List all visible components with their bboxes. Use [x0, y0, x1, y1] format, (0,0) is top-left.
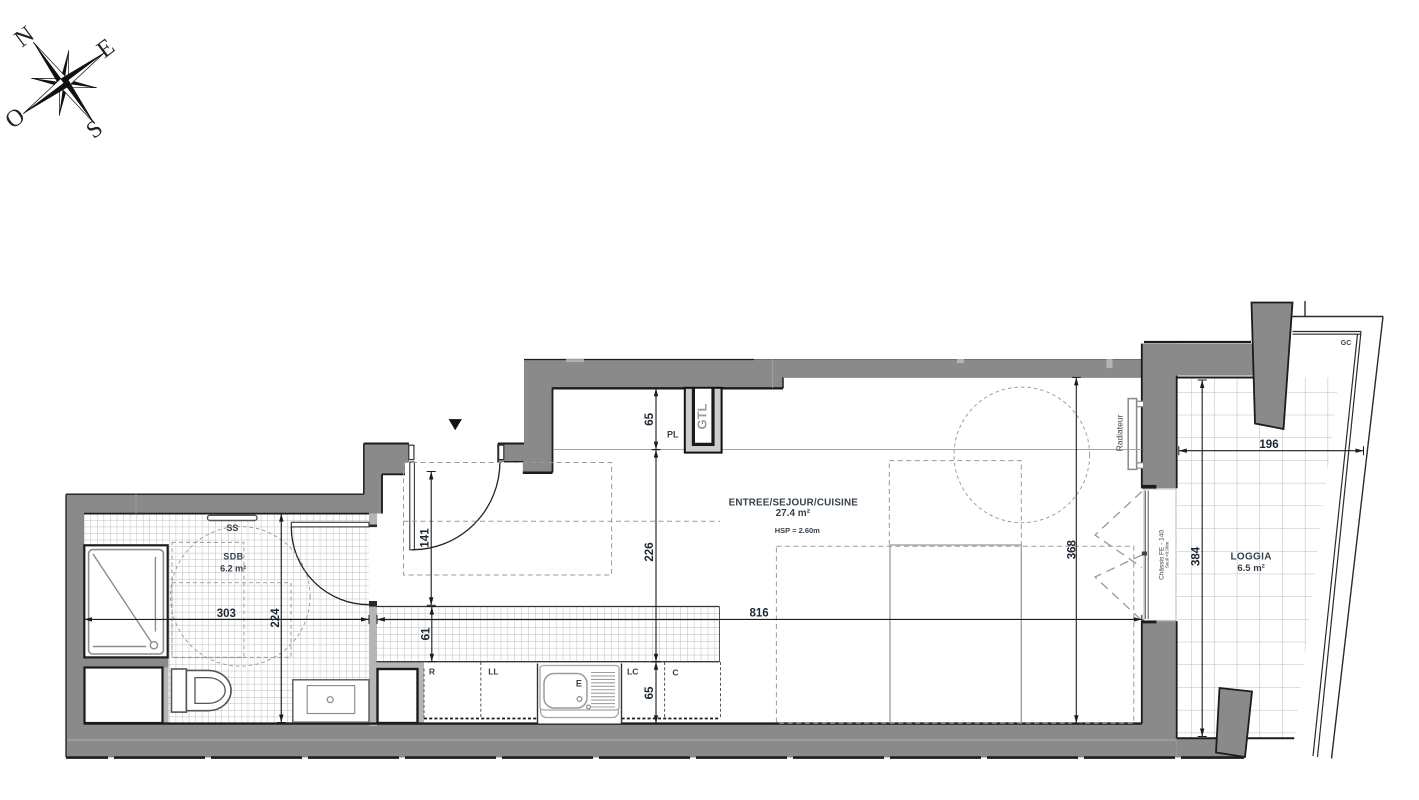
svg-text:6.5 m²: 6.5 m²: [1237, 563, 1264, 574]
svg-text:303: 303: [217, 608, 236, 620]
svg-text:196: 196: [1259, 439, 1278, 451]
svg-text:65: 65: [644, 686, 656, 699]
svg-text:E: E: [576, 679, 582, 689]
svg-text:816: 816: [750, 607, 769, 619]
svg-text:HSP = 2.60m: HSP = 2.60m: [775, 526, 820, 535]
svg-text:GTL: GTL: [695, 403, 710, 429]
svg-text:6.2 m²: 6.2 m²: [220, 563, 246, 573]
svg-text:LOGGIA: LOGGIA: [1230, 552, 1271, 563]
svg-text:226: 226: [644, 542, 656, 561]
svg-text:141: 141: [420, 528, 432, 548]
svg-text:SDB: SDB: [223, 551, 243, 561]
svg-text:PL: PL: [667, 429, 679, 439]
svg-text:61: 61: [420, 627, 432, 640]
svg-text:27.4 m²: 27.4 m²: [776, 508, 811, 519]
svg-text:ENTREE/SEJOUR/CUISINE: ENTREE/SEJOUR/CUISINE: [729, 497, 859, 508]
svg-text:GC: GC: [1341, 340, 1352, 347]
svg-text:224: 224: [270, 608, 282, 628]
svg-text:368: 368: [1066, 540, 1078, 560]
svg-text:65: 65: [644, 412, 656, 425]
svg-text:Radiateur: Radiateur: [1115, 414, 1125, 451]
svg-text:LL: LL: [488, 667, 498, 677]
svg-text:LC: LC: [627, 667, 638, 677]
svg-text:R: R: [429, 667, 435, 677]
svg-text:384: 384: [1191, 546, 1203, 566]
svg-text:SS: SS: [226, 523, 238, 533]
svg-text:Seuil <0.90m: Seuil <0.90m: [1165, 542, 1170, 569]
svg-text:C: C: [672, 668, 678, 678]
